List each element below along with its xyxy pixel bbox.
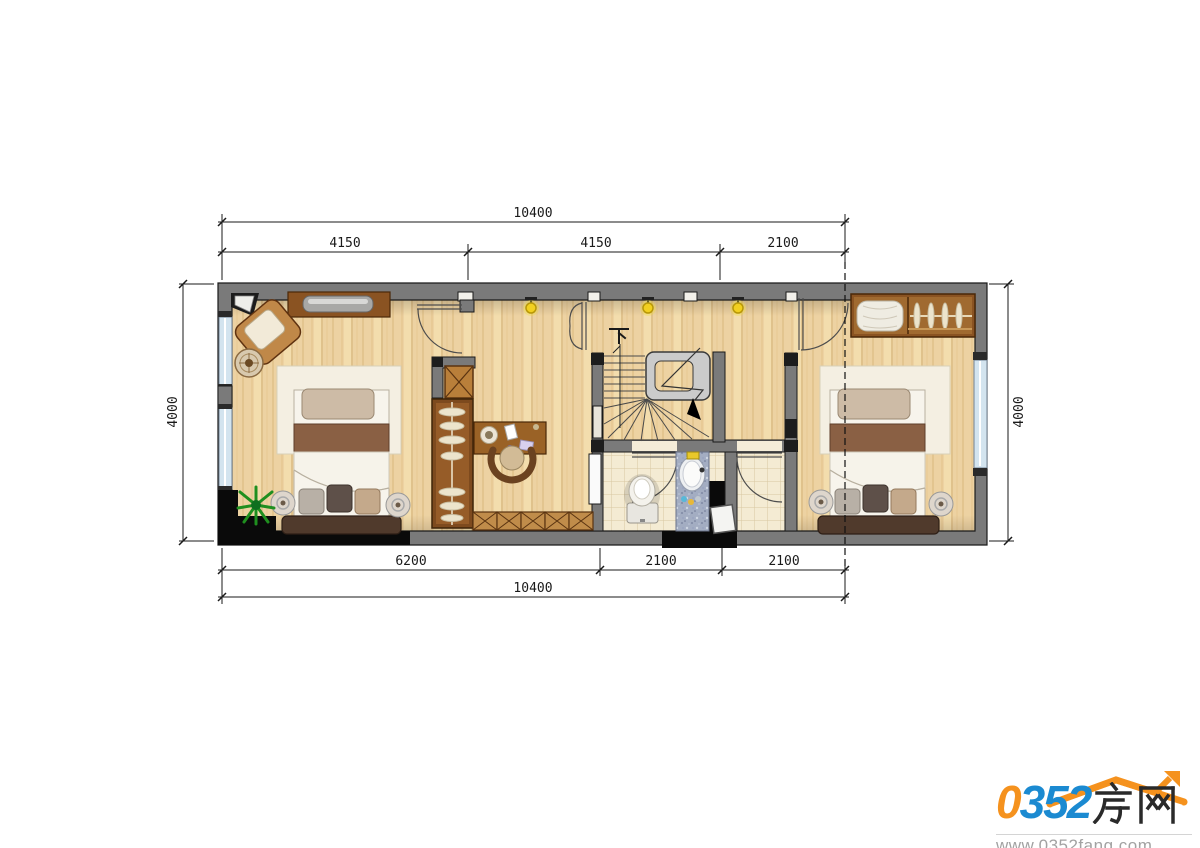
pillow <box>327 485 352 512</box>
nightstand-lamp <box>809 490 833 514</box>
stair-core-void <box>655 361 693 391</box>
headboard-cushion <box>302 389 374 419</box>
dim-label-bottom-seg1: 6200 <box>395 554 426 569</box>
bath-door-opening <box>632 441 677 451</box>
glyph-fang <box>1095 784 1130 822</box>
dim-label-right: 4000 <box>1012 396 1027 427</box>
logo-zero: 0 <box>996 776 1020 828</box>
pillow <box>835 489 860 514</box>
dim-label-top-seg1: 4150 <box>329 236 360 251</box>
faucet <box>700 468 705 473</box>
bed-blanket <box>294 424 389 452</box>
floorplan-drawing: 10400 4150 4150 2100 6200 2100 2100 1040… <box>0 0 1200 848</box>
stairwall-panel <box>593 406 602 438</box>
toilet <box>624 474 660 523</box>
vanity-sink <box>676 452 709 531</box>
nightstand-lamp <box>929 492 953 516</box>
soap-tray <box>687 452 699 459</box>
light-icon <box>523 297 539 316</box>
bed-right <box>809 366 953 534</box>
light-icon <box>640 297 656 316</box>
dim-label-top-seg3: 2100 <box>767 236 798 251</box>
closet-door-opening <box>737 441 782 451</box>
light-icon <box>730 297 746 316</box>
bedroom1-door-stub <box>460 300 474 312</box>
shelf-x-box <box>445 366 473 398</box>
pillow <box>863 485 888 512</box>
tv-cabinet <box>288 292 390 317</box>
headboard-cushion <box>838 389 910 419</box>
low-cabinet-row <box>473 512 593 530</box>
logo-352: 352 <box>1020 776 1091 828</box>
floorplan-canvas: 10400 4150 4150 2100 6200 2100 2100 1040… <box>0 0 1200 848</box>
dim-label-bottom-seg2: 2100 <box>645 554 676 569</box>
pillow <box>891 489 916 514</box>
dim-label-bottom-seg3: 2100 <box>768 554 799 569</box>
dim-label-top-seg2: 4150 <box>580 236 611 251</box>
closet-room-floor <box>737 452 786 531</box>
bed-left <box>271 366 410 534</box>
wardrobe-top <box>851 294 975 337</box>
dim-label-top-total: 10400 <box>513 206 552 221</box>
stair-right-wall <box>713 352 725 442</box>
bed-bench <box>282 516 401 534</box>
wardrobe-open <box>432 399 473 528</box>
logo-cn-characters <box>1092 782 1178 824</box>
pillow <box>355 489 380 514</box>
dim-label-bottom-total: 10400 <box>513 581 552 596</box>
nightstand-lamp <box>271 491 295 515</box>
site-watermark: 0352 www.0352fang.com <box>996 766 1198 848</box>
left-window-upper <box>218 311 232 389</box>
pillow <box>299 489 324 514</box>
nightstand-lamp <box>386 493 410 517</box>
bed-bench <box>818 516 939 534</box>
bath-pocket-door <box>589 454 601 504</box>
mirror-panel <box>710 505 735 534</box>
glyph-wang <box>1141 788 1173 822</box>
bed-blanket <box>830 424 925 452</box>
left-window-lower <box>218 404 232 491</box>
dim-label-left: 4000 <box>166 396 181 427</box>
watermark-logo: 0352 <box>996 766 1198 833</box>
side-table <box>235 349 263 377</box>
right-window <box>973 352 987 476</box>
watermark-url: www.0352fang.com <box>996 834 1192 848</box>
